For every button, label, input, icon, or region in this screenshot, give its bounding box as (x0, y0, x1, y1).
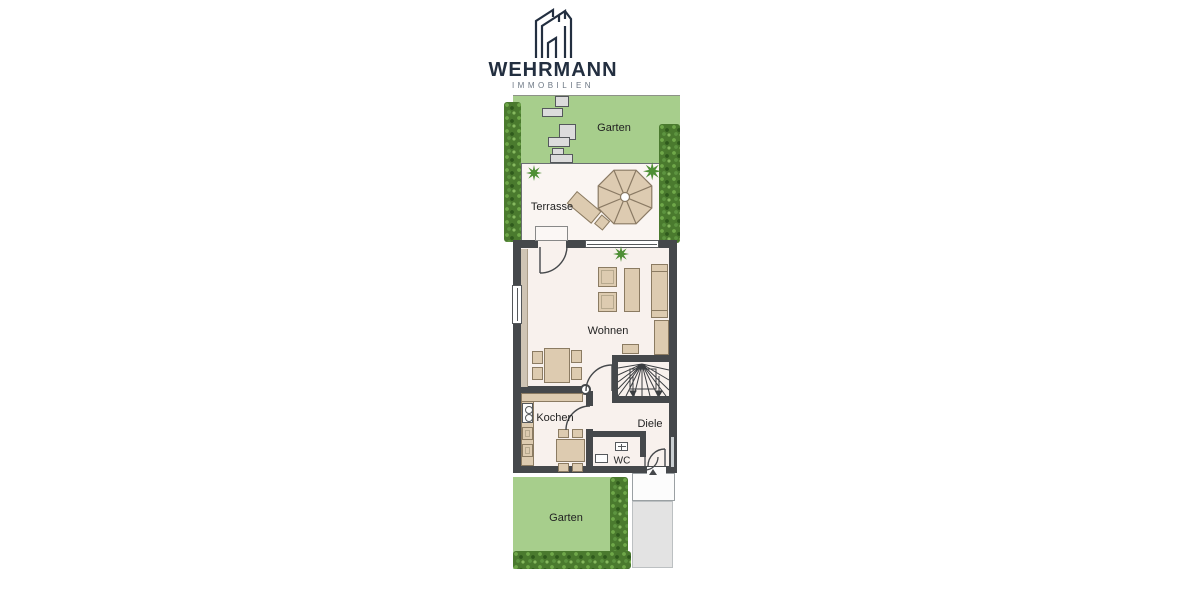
garden-item-1 (555, 96, 569, 107)
stairs-cabinet (622, 344, 639, 354)
wall-living-kitchen (521, 386, 586, 393)
hedge-bottom-horizontal (513, 551, 631, 569)
dining-chair-2 (532, 367, 543, 380)
dining-chair-3 (571, 350, 582, 363)
sideboard (654, 320, 669, 355)
terrace-door-opening (538, 241, 566, 248)
floorplan-page: WEHRMANN IMMOBILIEN (0, 0, 1200, 600)
garden-item-4 (548, 137, 570, 147)
brand-name: WEHRMANN (453, 59, 653, 82)
label-wc: WC (614, 456, 631, 467)
wall-wc-top (593, 431, 645, 437)
kitchen-chair-4 (572, 463, 583, 472)
coffee-table (624, 268, 640, 312)
wall-kitchen-hall-lower (586, 429, 593, 466)
kitchen-chair-3 (558, 463, 569, 472)
dining-chair-1 (532, 351, 543, 364)
wall-stairs-bottom (618, 396, 669, 403)
hedge-top-right (659, 124, 680, 243)
hedge-top-left (504, 102, 521, 242)
label-terrace: Terrasse (531, 201, 573, 213)
label-living: Wohnen (588, 325, 629, 337)
garden-item-6 (550, 154, 573, 163)
kitchen-chair-1 (558, 429, 569, 438)
terrace-door-threshold (535, 226, 568, 241)
living-window-top-mullion (587, 244, 657, 245)
entry-porch (632, 473, 675, 501)
armchair-2 (598, 292, 617, 312)
dining-chair-4 (571, 367, 582, 380)
wc-toilet (615, 442, 628, 451)
sofa (651, 264, 668, 318)
dining-table (544, 348, 570, 383)
wall-watermark (671, 437, 674, 467)
kitchen-table (556, 439, 585, 462)
label-garden-top: Garten (597, 122, 631, 134)
entrance-opening (647, 467, 666, 474)
kitchen-appliance-2 (522, 444, 533, 457)
wall-left (513, 240, 521, 473)
driveway-paving (632, 501, 673, 568)
kitchen-sink (522, 403, 533, 423)
kitchen-appliance-1 (522, 427, 533, 440)
label-garden-bottom: Garten (549, 512, 583, 524)
garden-item-2 (542, 108, 563, 117)
armchair-1 (598, 267, 617, 287)
living-window-left-mullion (517, 288, 518, 321)
wc-sink (595, 454, 608, 463)
label-kitchen: Kochen (536, 412, 573, 424)
label-hall: Diele (637, 418, 662, 430)
logo-house-icon (532, 6, 580, 60)
wall-left-inner-strip (521, 249, 528, 387)
kitchen-chair-2 (572, 429, 583, 438)
wall-wc-right (640, 431, 646, 457)
brand-tagline: IMMOBILIEN (453, 81, 653, 90)
wall-stairs-top (618, 355, 669, 362)
hedge-bottom-vertical (610, 477, 628, 555)
